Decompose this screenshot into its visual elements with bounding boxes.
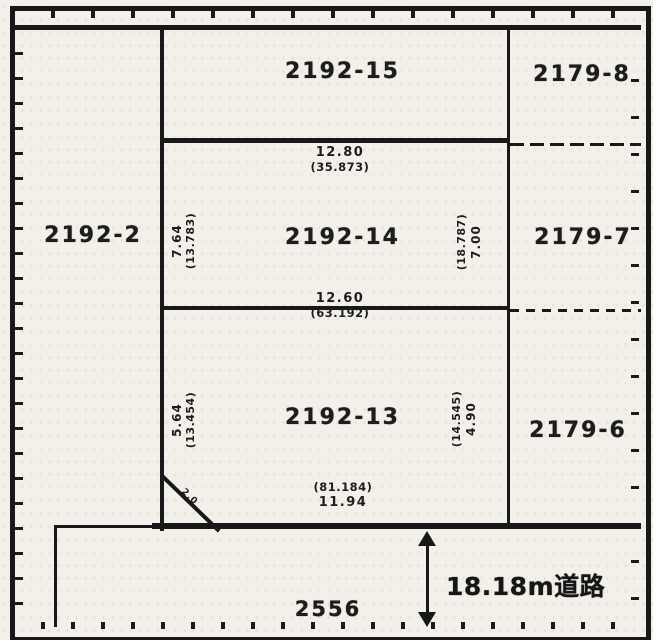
left-vertical-boundary xyxy=(160,25,164,531)
parcel-label-2179-6: 2179-6 xyxy=(518,419,638,443)
measurement-right-lower-value: 4.90 xyxy=(464,364,478,474)
parcel-label-2179-7: 2179-7 xyxy=(523,226,643,250)
measurement-middle-value: 12.60 xyxy=(280,291,400,306)
parcel-label-2556: 2556 xyxy=(283,598,373,621)
map-border-frame xyxy=(10,6,651,640)
road-width-label: 18.18m道路 xyxy=(446,567,605,603)
measurement-left-upper-value: 7.64 xyxy=(170,186,184,296)
measurement-left-upper-edge: 7.64 (13.783) xyxy=(170,186,198,296)
center-block-top-line xyxy=(160,138,510,143)
bottom-edge-ticks xyxy=(15,622,638,629)
measurement-right-upper-paren: (18.787) xyxy=(455,186,469,298)
right-column-top-line xyxy=(510,143,641,146)
cadastral-map: 2192-15 2179-8 2192-2 2192-14 2179-7 219… xyxy=(0,0,653,640)
measurement-right-upper-value: 7.00 xyxy=(469,186,483,298)
road-arrow-head-up-icon xyxy=(418,531,436,546)
parcel-label-2192-13: 2192-13 xyxy=(255,406,430,430)
road-top-line xyxy=(152,523,641,529)
right-edge-ticks xyxy=(631,45,639,615)
measurement-right-lower-paren: (14.545) xyxy=(450,364,464,474)
measurement-top-paren: (35.873) xyxy=(280,160,400,175)
left-edge-ticks xyxy=(15,30,23,622)
parcel-label-2179-8: 2179-8 xyxy=(523,63,641,87)
measurement-right-lower-edge: (14.545) 4.90 xyxy=(450,364,478,474)
measurement-middle-paren: (63.192) xyxy=(280,306,400,321)
parcel-label-2192-2: 2192-2 xyxy=(28,224,158,248)
parcel-label-2192-15: 2192-15 xyxy=(255,60,430,84)
measurement-bottom-value: 11.94 xyxy=(278,495,408,510)
parcel-label-2192-14: 2192-14 xyxy=(255,226,430,250)
bottom-left-vertical-line xyxy=(54,525,57,627)
top-edge-ticks xyxy=(15,11,638,18)
measurement-right-upper-edge: (18.787) 7.00 xyxy=(455,186,483,298)
right-vertical-boundary xyxy=(507,25,510,528)
road-arrow-head-down-icon xyxy=(418,612,436,627)
measurement-top-value: 12.80 xyxy=(280,145,400,160)
top-boundary-line xyxy=(15,25,641,30)
measurement-left-lower-paren: (13.454) xyxy=(184,368,198,472)
measurement-top-edge: 12.80 (35.873) xyxy=(280,145,400,175)
right-column-middle-line xyxy=(510,309,641,312)
measurement-left-upper-paren: (13.783) xyxy=(184,186,198,296)
measurement-left-lower-value: 5.64 xyxy=(170,368,184,472)
measurement-left-lower-edge: 5.64 (13.454) xyxy=(170,368,198,472)
measurement-middle-edge: 12.60 (63.192) xyxy=(280,291,400,321)
measurement-bottom-edge: (81.184) 11.94 xyxy=(278,480,408,510)
measurement-bottom-paren: (81.184) xyxy=(278,480,408,495)
road-top-line-left-segment xyxy=(54,525,160,528)
road-arrow-line xyxy=(426,544,429,618)
